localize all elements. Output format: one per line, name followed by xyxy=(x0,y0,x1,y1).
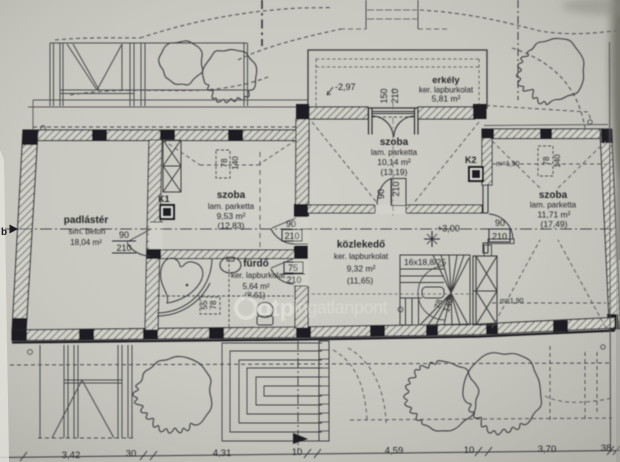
svg-text:78: 78 xyxy=(209,300,218,309)
svg-text:(17,49): (17,49) xyxy=(541,219,568,229)
svg-text:fürdő: fürdő xyxy=(243,259,269,270)
svg-text:(12,83): (12,83) xyxy=(218,221,245,231)
svg-text:-2,97: -2,97 xyxy=(335,82,356,92)
svg-text:(13,19): (13,19) xyxy=(381,167,408,177)
svg-text:18,04 m²: 18,04 m² xyxy=(70,238,102,247)
svg-text:padlástér: padlástér xyxy=(64,215,109,226)
svg-text:5,64 m²: 5,64 m² xyxy=(242,282,269,291)
svg-text:szoba: szoba xyxy=(380,137,409,148)
svg-text:9,53 m²: 9,53 m² xyxy=(217,211,246,221)
svg-text:10: 10 xyxy=(292,447,303,458)
svg-text:10: 10 xyxy=(464,445,475,456)
svg-text:lam. parketta: lam. parketta xyxy=(371,148,418,157)
svg-text:szoba: szoba xyxy=(539,190,568,201)
svg-text:m=1,90: m=1,90 xyxy=(500,298,524,305)
svg-text:közlekedő: közlekedő xyxy=(337,240,385,251)
svg-text:210: 210 xyxy=(391,181,401,196)
svg-text:lam. parketta: lam. parketta xyxy=(530,201,577,210)
svg-text:m=1,90: m=1,90 xyxy=(496,161,520,168)
svg-text:140: 140 xyxy=(231,156,240,170)
svg-text:140: 140 xyxy=(553,154,562,168)
svg-text:5,81 m²: 5,81 m² xyxy=(432,94,461,104)
svg-text:90: 90 xyxy=(286,219,296,229)
svg-text:otp: otp xyxy=(257,295,294,322)
svg-text:K2: K2 xyxy=(465,155,477,165)
svg-text:90: 90 xyxy=(495,218,505,228)
svg-text:+3,00: +3,00 xyxy=(437,224,460,234)
svg-text:erkély: erkély xyxy=(432,75,460,86)
svg-text:90: 90 xyxy=(376,189,386,199)
svg-text:90: 90 xyxy=(119,230,129,240)
svg-text:4,59: 4,59 xyxy=(385,446,404,457)
svg-text:75: 75 xyxy=(288,263,298,273)
svg-text:78: 78 xyxy=(542,156,551,165)
svg-text:ker. lapburkolat: ker. lapburkolat xyxy=(334,252,389,261)
svg-text:11,71 m²: 11,71 m² xyxy=(538,210,571,220)
svg-text:55: 55 xyxy=(200,300,209,309)
svg-text:210: 210 xyxy=(492,232,507,242)
svg-text:210: 210 xyxy=(284,231,299,241)
svg-text:9,32 m²: 9,32 m² xyxy=(347,264,376,274)
svg-text:3,42: 3,42 xyxy=(62,450,81,461)
svg-text:3,70: 3,70 xyxy=(538,444,557,455)
svg-text:4,31: 4,31 xyxy=(213,448,232,459)
svg-text:(11,65): (11,65) xyxy=(347,276,373,286)
svg-text:10,14 m²: 10,14 m² xyxy=(377,157,411,167)
svg-text:16x18,8/25: 16x18,8/25 xyxy=(404,257,446,267)
svg-text:210: 210 xyxy=(116,243,131,253)
svg-text:78: 78 xyxy=(220,158,229,167)
svg-text:K1: K1 xyxy=(158,194,170,204)
svg-text:ingatlanpont: ingatlanpont xyxy=(294,298,388,318)
svg-text:210: 210 xyxy=(390,88,400,103)
svg-text:lam. parketta: lam. parketta xyxy=(208,202,255,211)
svg-text:b: b xyxy=(1,227,7,238)
svg-text:30: 30 xyxy=(126,449,137,460)
svg-text:ker. lapburkolat: ker. lapburkolat xyxy=(231,271,286,280)
svg-text:150: 150 xyxy=(379,88,389,103)
svg-text:sim. beton: sim. beton xyxy=(69,227,106,236)
svg-text:38: 38 xyxy=(601,443,612,454)
svg-text:szoba: szoba xyxy=(217,190,246,201)
svg-text:210: 210 xyxy=(286,275,301,285)
